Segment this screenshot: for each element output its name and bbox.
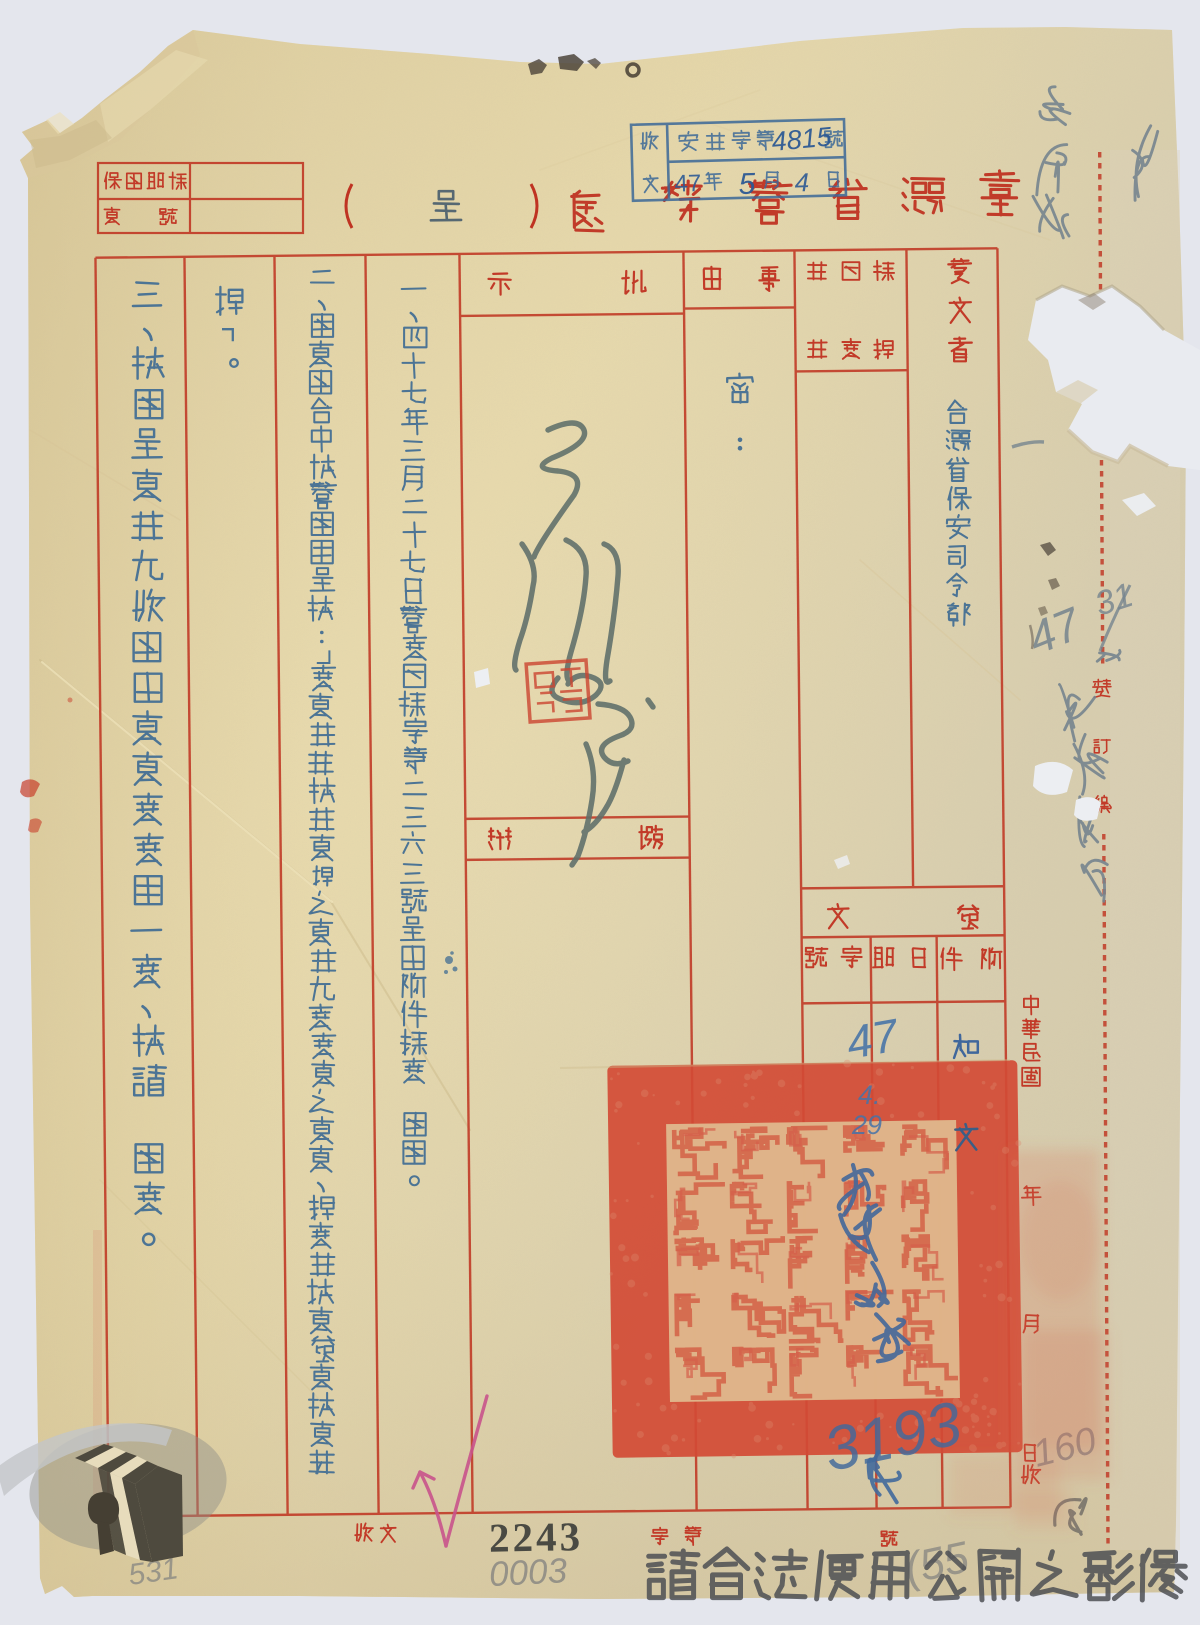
svg-text:29: 29 [851, 1110, 882, 1140]
svg-text:4815: 4815 [770, 121, 834, 157]
svg-text:5: 5 [738, 168, 756, 201]
svg-text:4: 4 [794, 167, 809, 197]
svg-text:4.: 4. [858, 1080, 881, 1110]
svg-text:47: 47 [674, 170, 701, 198]
svg-text:0003: 0003 [488, 1551, 568, 1594]
svg-text:47: 47 [842, 1008, 903, 1068]
